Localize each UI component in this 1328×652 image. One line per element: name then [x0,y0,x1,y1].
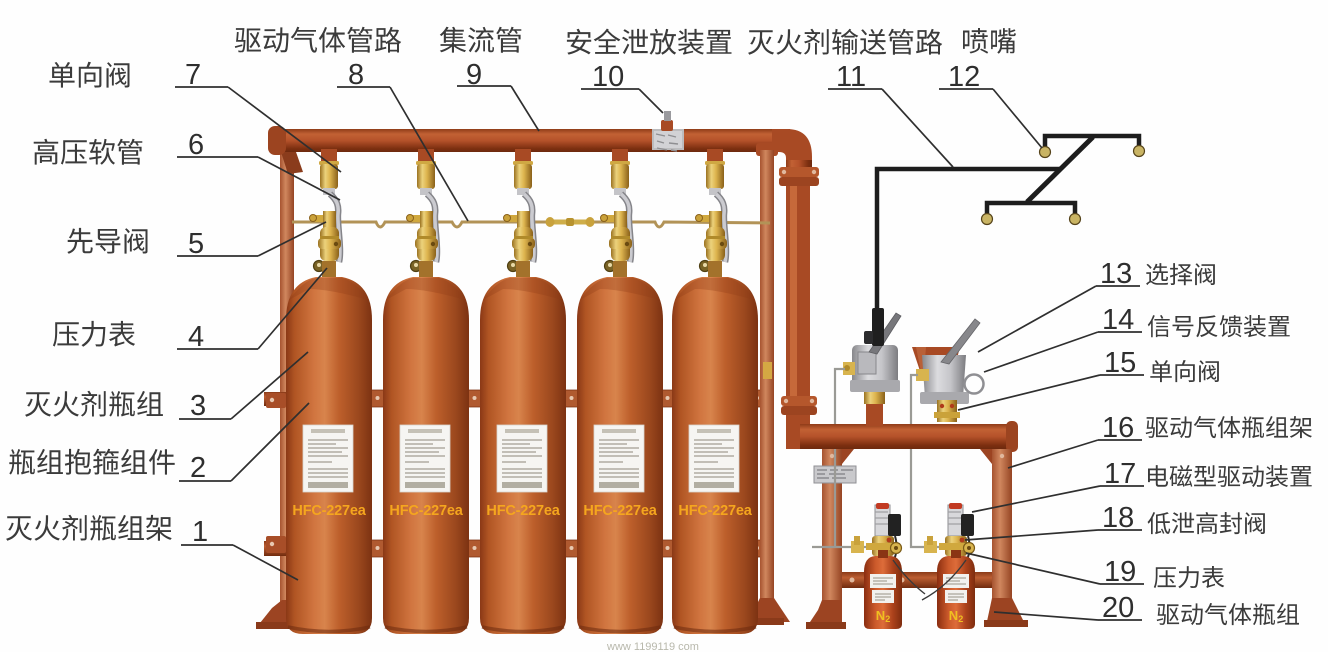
svg-text:2: 2 [190,452,206,484]
svg-text:HFC-227ea: HFC-227ea [486,503,560,519]
svg-text:3: 3 [190,390,206,422]
svg-text:www 1199119 com: www 1199119 com [606,641,699,652]
svg-text:HFC-227ea: HFC-227ea [583,503,657,519]
svg-text:1: 1 [192,516,208,548]
svg-text:HFC-227ea: HFC-227ea [292,503,366,519]
svg-text:HFC-227ea: HFC-227ea [389,503,463,519]
svg-text:HFC-227ea: HFC-227ea [678,503,752,519]
